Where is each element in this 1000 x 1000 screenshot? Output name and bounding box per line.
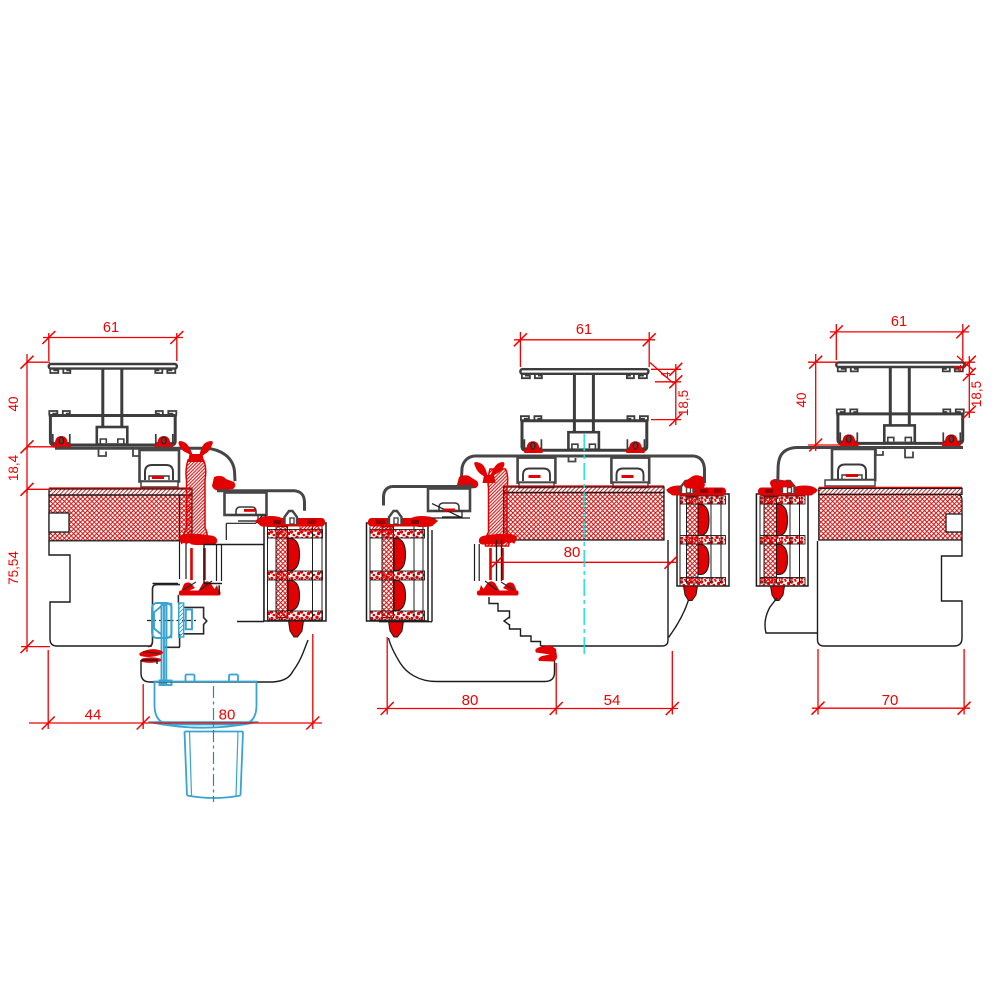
svg-text:4: 4 (952, 364, 966, 371)
svg-text:4: 4 (659, 371, 673, 378)
svg-text:40: 40 (6, 396, 21, 411)
svg-text:75,54: 75,54 (6, 551, 21, 585)
svg-text:40: 40 (794, 392, 809, 407)
svg-text:80: 80 (219, 707, 236, 724)
svg-text:18,5: 18,5 (969, 381, 984, 407)
svg-text:54: 54 (604, 692, 621, 709)
svg-text:70: 70 (882, 692, 899, 709)
svg-text:80: 80 (462, 692, 479, 709)
svg-text:44: 44 (85, 707, 102, 724)
svg-text:80: 80 (564, 544, 581, 561)
svg-text:61: 61 (103, 320, 119, 336)
svg-text:61: 61 (576, 322, 592, 338)
svg-text:18,4: 18,4 (6, 454, 21, 481)
svg-text:61: 61 (891, 314, 907, 330)
svg-text:18,5: 18,5 (676, 390, 691, 416)
